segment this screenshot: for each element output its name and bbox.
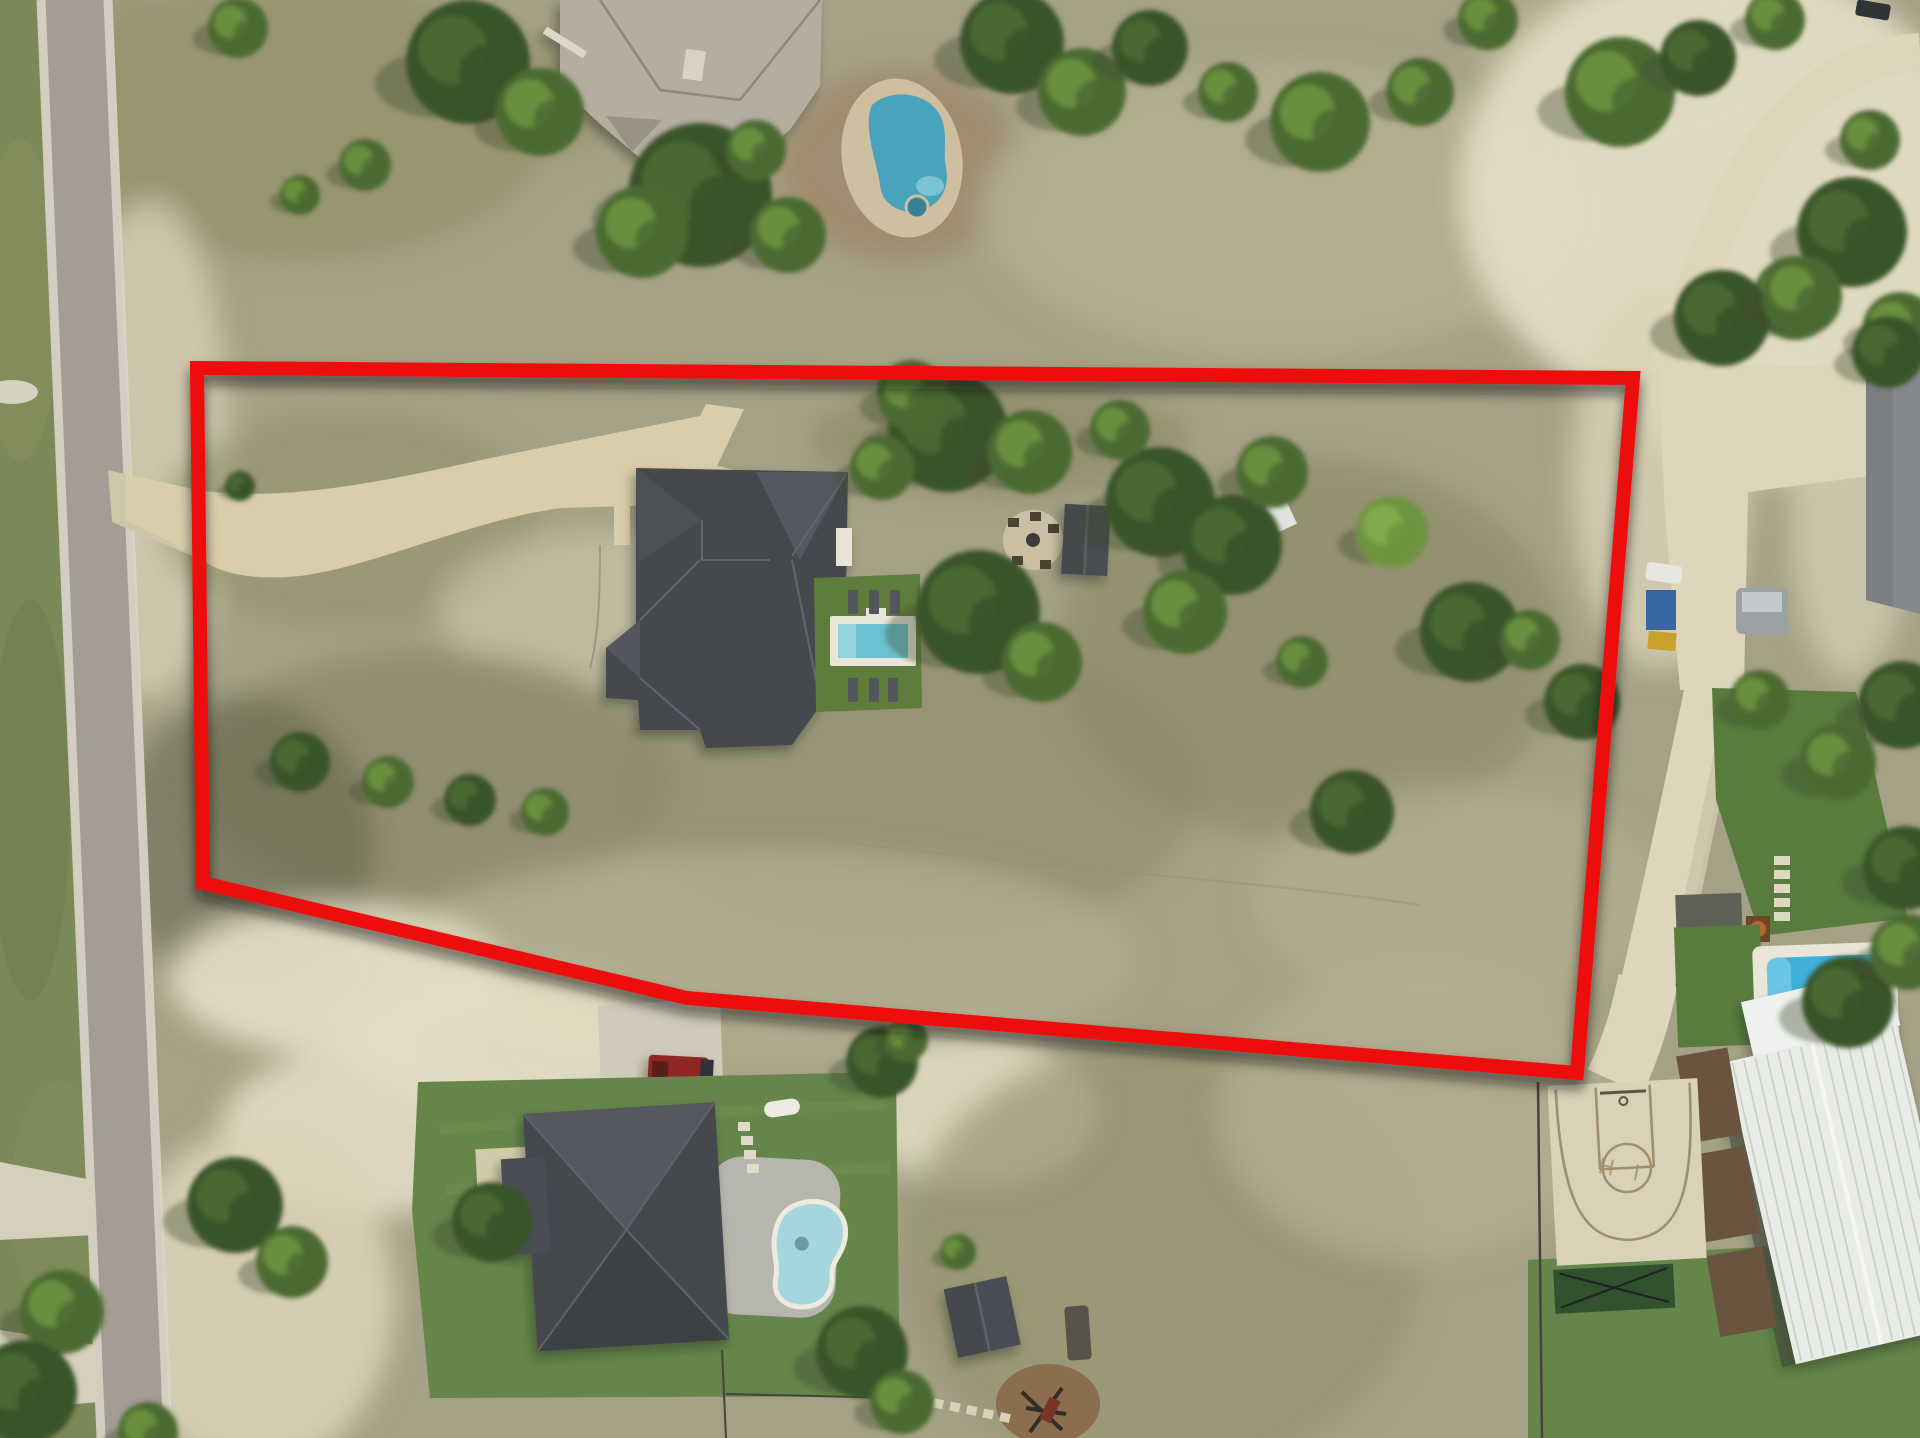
tree-canopy-lobe (297, 190, 315, 208)
tree-canopy-lobe (752, 142, 779, 169)
firepit-chair (1048, 524, 1059, 533)
tree-canopy-lobe (782, 225, 816, 259)
gray-van-roof (1742, 592, 1782, 612)
tree-canopy-lobe (1298, 655, 1321, 678)
tree-canopy-lobe (533, 100, 573, 140)
pool-lounger (888, 678, 898, 702)
outdoor-fireplace (836, 528, 852, 566)
tree-canopy-lobe (1526, 632, 1553, 659)
tree-canopy-lobe (1692, 48, 1726, 82)
stepping-stone (1774, 884, 1790, 893)
tree-canopy-lobe (1036, 651, 1072, 687)
firepit-chair (1030, 512, 1041, 521)
tree-canopy-lobe (1346, 801, 1384, 839)
drive-to-court (1615, 980, 1648, 1082)
top-pool-spa (906, 196, 928, 218)
stepping-stone (1774, 856, 1790, 865)
tree-canopy-lobe (903, 1034, 923, 1054)
tree-canopy-lobe (361, 158, 384, 181)
stepping-stone (1774, 912, 1790, 921)
tree-canopy-lobe (897, 1393, 926, 1422)
top-pool-steps (916, 176, 944, 196)
tree-canopy-lobe (1313, 109, 1358, 154)
tree-canopy-lobe (1866, 132, 1893, 159)
tree-canopy-lobe (1771, 12, 1798, 39)
tree-canopy-lobe (1144, 38, 1178, 72)
tree-canopy-lobe (486, 1211, 522, 1247)
tree-canopy-lobe (466, 793, 489, 816)
tree-canopy-lobe (1415, 83, 1446, 114)
pool-lounger (869, 590, 879, 614)
tree-canopy-lobe (689, 176, 754, 241)
pool-lounger (869, 678, 879, 702)
pool-lounger (890, 590, 900, 614)
back-shed-wing (1083, 545, 1109, 576)
tree-canopy-lobe (1387, 522, 1419, 554)
tree-canopy-lobe (1484, 12, 1511, 39)
pool-lounger (848, 678, 858, 702)
tree-canopy-lobe (238, 482, 252, 496)
tree-canopy-lobe (1756, 692, 1783, 719)
tree-canopy-lobe (1075, 80, 1115, 120)
tree-canopy-lobe (1224, 84, 1251, 111)
top-house-chimney (682, 49, 706, 81)
tree-canopy-lobe (1796, 285, 1832, 321)
entry-step (744, 1150, 756, 1159)
tree-canopy-lobe (541, 806, 563, 828)
pool-lounger (848, 590, 858, 614)
entry-step (738, 1122, 750, 1131)
entry-step (747, 1164, 759, 1173)
stepping-stone (1774, 898, 1790, 907)
tree-canopy-lobe (1004, 28, 1051, 75)
tree-canopy-lobe (1225, 532, 1270, 577)
tree-canopy-lobe (635, 220, 676, 261)
firepit (1026, 533, 1040, 547)
tree-canopy-lobe (296, 754, 323, 781)
tree-canopy-lobe (384, 775, 407, 798)
blue-tractor (1646, 590, 1676, 630)
tree-canopy-lobe (955, 1247, 971, 1263)
tree-canopy-lobe (1267, 462, 1299, 494)
tree-canopy-lobe (17, 1378, 64, 1425)
tree-canopy-lobe (1841, 990, 1882, 1031)
tree-canopy-lobe (287, 1252, 319, 1284)
tree-canopy-lobe (234, 20, 261, 47)
tree-canopy-lobe (56, 1301, 94, 1339)
entry-step (741, 1136, 753, 1145)
front-walkway (614, 505, 630, 545)
tree-canopy-lobe (1844, 217, 1894, 267)
aerial-photo: H I (0, 0, 1920, 1438)
firepit-chair (1008, 518, 1019, 527)
tree-canopy-lobe (1116, 422, 1143, 449)
tree-canopy-lobe (1832, 752, 1866, 786)
tree-canopy-lobe (1179, 601, 1217, 639)
tree-canopy-lobe (877, 459, 906, 488)
tree-canopy-lobe (907, 386, 939, 418)
stepping-stone (1774, 870, 1790, 879)
firepit-chair (1040, 560, 1051, 569)
tree-canopy-lobe (228, 1192, 271, 1235)
tree-canopy-lobe (1024, 441, 1062, 479)
yellow-equipment (1647, 631, 1676, 651)
swing-bench-canopy (1064, 1305, 1092, 1361)
lap-pool-steps (838, 624, 856, 658)
aerial-photo-stage: H I (0, 0, 1920, 1438)
tree-canopy-lobe (1883, 342, 1915, 374)
